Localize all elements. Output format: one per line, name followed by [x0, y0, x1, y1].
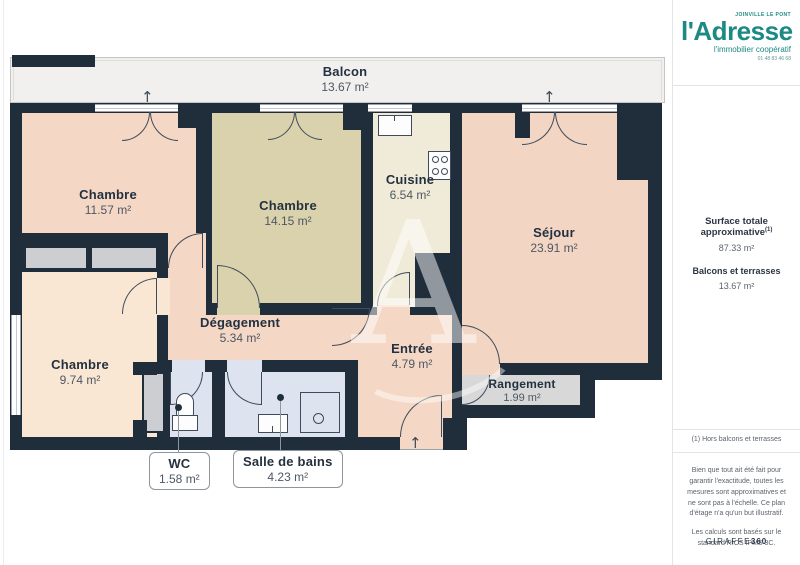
room-area: 11.57 m²	[48, 203, 168, 218]
door-leaf	[217, 265, 218, 308]
room-label-entree: Entrée 4.79 m²	[352, 341, 472, 371]
room-name: Chambre	[228, 198, 348, 214]
room-label-chambre-1: Chambre 11.57 m²	[48, 187, 168, 217]
giraffe360-logo: GIRAFFE360	[673, 537, 800, 546]
room-name: Balcon	[270, 64, 420, 80]
room-label-rangement: Rangement 1.99 m²	[464, 377, 580, 405]
door-leaf	[170, 372, 171, 405]
door-leaf	[202, 233, 203, 268]
room-name: Salle de bains	[243, 454, 333, 470]
room-label-degagement: Dégagement 5.34 m²	[180, 315, 300, 345]
leader-dot	[277, 394, 284, 401]
room-label-chambre-3: Chambre 9.74 m²	[20, 357, 140, 387]
door-opening-chambre-3	[157, 278, 170, 315]
kitchen-sink-icon	[378, 115, 412, 136]
door-opening-wc	[172, 360, 205, 372]
entrance-arrow-icon: ↑	[409, 436, 422, 451]
wall	[443, 418, 467, 450]
divider	[673, 429, 800, 430]
balconies-label: Balcons et terrasses	[679, 266, 794, 276]
room-name: Dégagement	[180, 315, 300, 331]
burner-icon	[441, 156, 448, 163]
room-name: Chambre	[48, 187, 168, 203]
room-name: Séjour	[494, 225, 614, 241]
room-area: 4.79 m²	[352, 357, 472, 372]
agency-logo: JOINVILLE LE PONT l'Adresse l'immobilier…	[681, 12, 791, 62]
door-leaf	[261, 372, 262, 405]
agency-name: l'Adresse	[681, 18, 791, 45]
wardrobe	[26, 248, 86, 268]
window	[368, 104, 412, 112]
surface-total-value: 87.33 m²	[679, 243, 794, 253]
page-edge-line	[3, 0, 4, 565]
leader-dot	[175, 404, 182, 411]
info-sidebar: JOINVILLE LE PONT l'Adresse l'immobilier…	[672, 0, 800, 565]
room-area: 23.91 m²	[494, 241, 614, 256]
surface-footnote: (1) Hors balcons et terrasses	[677, 436, 796, 443]
wall	[133, 420, 147, 438]
surface-summary: Surface totale approximative(1) 87.33 m²…	[679, 216, 794, 291]
toilet-tank-icon	[172, 415, 198, 431]
room-label-balcon: Balcon 13.67 m²	[270, 64, 420, 94]
room-area: 4.23 m²	[243, 470, 333, 484]
divider	[673, 452, 800, 453]
room-label-cuisine: Cuisine 6.54 m²	[374, 172, 446, 202]
giraffe360-logo-text: GIRAFFE	[706, 537, 751, 546]
door-opening-salle-de-bains	[227, 360, 262, 372]
burner-icon	[432, 156, 439, 163]
room-area: 1.99 m²	[464, 392, 580, 405]
footprint-cutout	[595, 380, 672, 455]
window	[522, 104, 617, 112]
room-name: Entrée	[352, 341, 472, 357]
divider	[673, 85, 800, 86]
agency-phone: 01 48 83 46 68	[681, 56, 791, 62]
room-name: Chambre	[20, 357, 140, 373]
shower-drain-icon	[313, 413, 324, 424]
footprint-cutout	[467, 418, 595, 455]
surface-note-ref: (1)	[765, 227, 772, 233]
room-area: 14.15 m²	[228, 214, 348, 229]
room-area: 6.54 m²	[374, 188, 446, 203]
sink-handle-icon	[272, 426, 273, 433]
door-leaf	[156, 278, 157, 314]
wall	[343, 112, 373, 130]
tap-icon	[394, 115, 395, 121]
room-area: 1.58 m²	[159, 472, 200, 486]
callout-salle-de-bains: Salle de bains 4.23 m²	[233, 450, 343, 488]
floor-plan-page: ↑ ↑ ↑ A Balcon 13.67 m² Chambre 11.57 m²…	[0, 0, 800, 565]
callout-wc: WC 1.58 m²	[149, 452, 210, 490]
wall	[617, 103, 662, 180]
room-name: Rangement	[464, 377, 580, 392]
room-label-chambre-2: Chambre 14.15 m²	[228, 198, 348, 228]
wall	[178, 112, 196, 128]
window	[95, 104, 178, 112]
surface-total-label: Surface totale approximative(1)	[679, 216, 794, 238]
room-label-sejour: Séjour 23.91 m²	[494, 225, 614, 255]
wardrobe	[92, 248, 156, 268]
balconies-value: 13.67 m²	[679, 281, 794, 291]
bathroom-sink-icon	[258, 414, 288, 433]
leader-line	[178, 411, 179, 453]
leader-line	[280, 401, 281, 450]
wall	[12, 55, 95, 67]
balcony-access-arrow-icon: ↑	[543, 90, 556, 105]
window	[260, 104, 343, 112]
balcony-access-arrow-icon: ↑	[141, 90, 154, 105]
disclaimer-text: Bien que tout ait été fait pour garantir…	[683, 466, 790, 520]
room-name: WC	[159, 456, 200, 472]
giraffe360-logo-suffix: 360	[751, 537, 767, 546]
room-area: 9.74 m²	[20, 373, 140, 388]
room-area: 5.34 m²	[180, 331, 300, 346]
room-name: Cuisine	[374, 172, 446, 188]
surface-total-label-text: Surface totale approximative	[701, 216, 768, 238]
room-area: 13.67 m²	[270, 80, 420, 95]
